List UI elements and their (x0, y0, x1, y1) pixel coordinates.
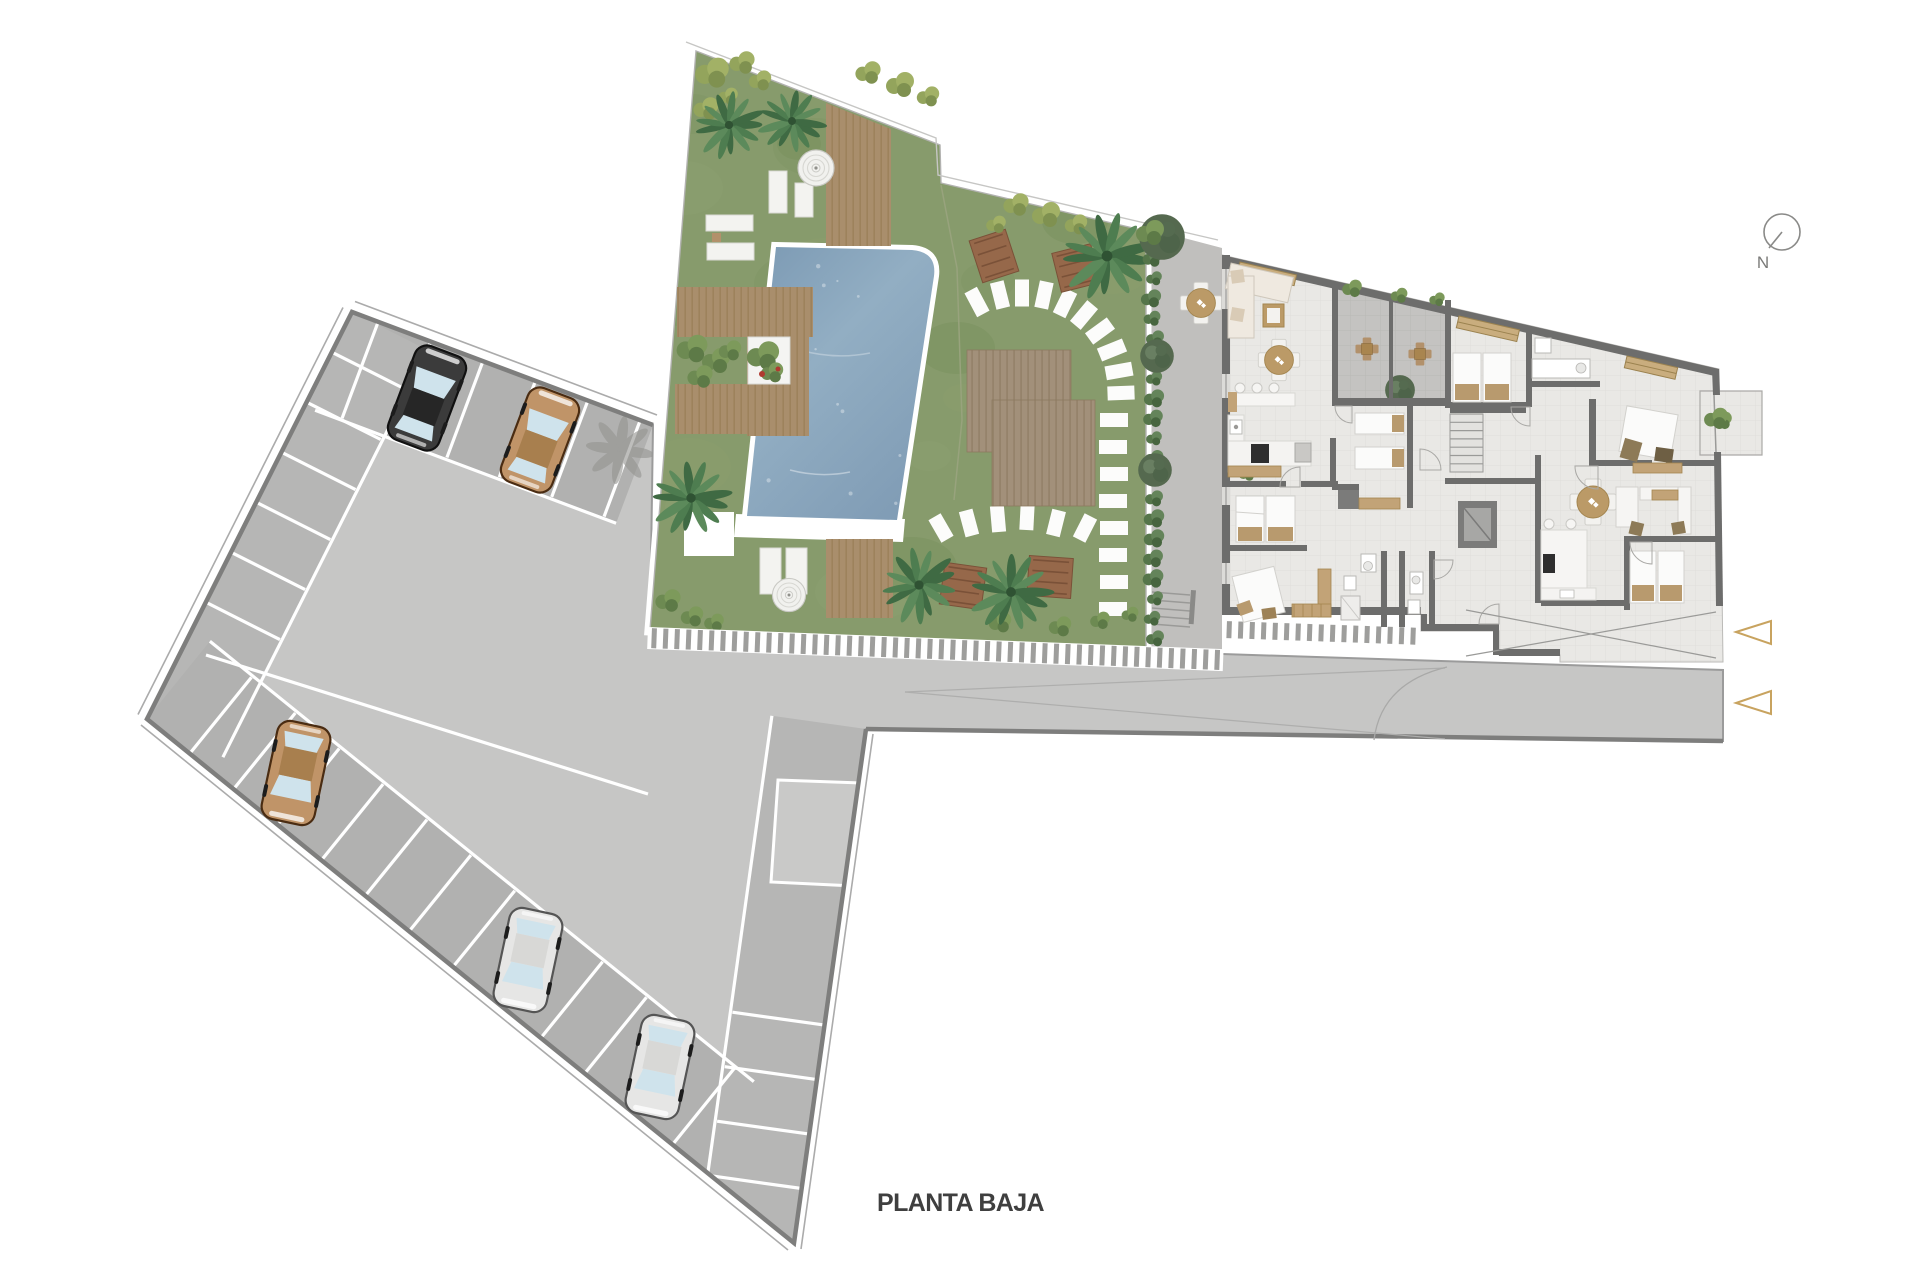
svg-text:N: N (1757, 253, 1769, 272)
svg-text:PLANTA BAJA: PLANTA BAJA (877, 1189, 1045, 1217)
